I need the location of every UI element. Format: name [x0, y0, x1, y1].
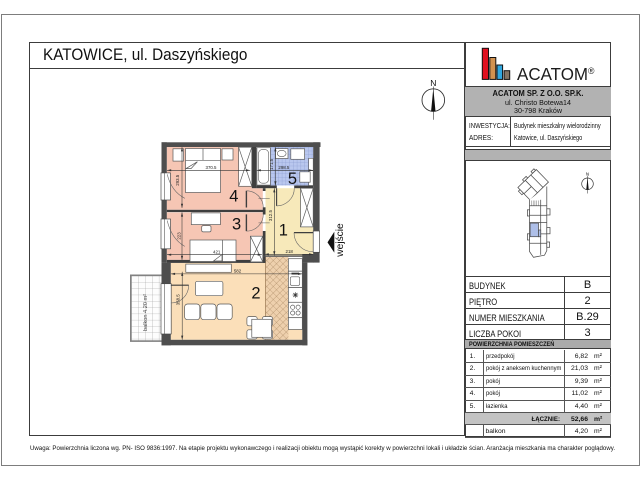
svg-text:5: 5	[288, 170, 297, 188]
svg-text:312.5: 312.5	[268, 210, 273, 222]
svg-text:171.5: 171.5	[269, 158, 274, 170]
svg-text:N: N	[430, 78, 436, 88]
svg-text:370.5: 370.5	[206, 165, 218, 170]
svg-text:223: 223	[176, 232, 181, 240]
svg-text:2: 2	[251, 284, 260, 302]
svg-text:wejście: wejście	[335, 223, 346, 258]
svg-text:358.5: 358.5	[176, 294, 181, 306]
svg-text:421: 421	[213, 250, 221, 255]
svg-text:582: 582	[234, 269, 242, 274]
svg-text:3: 3	[232, 215, 241, 233]
svg-text:N: N	[586, 172, 589, 177]
svg-text:298.5: 298.5	[278, 165, 290, 170]
svg-text:1: 1	[279, 221, 288, 239]
svg-text:218: 218	[286, 249, 294, 254]
svg-text:4: 4	[229, 187, 238, 205]
svg-text:293.5: 293.5	[175, 174, 180, 186]
svg-text:balkon 4.20 m²: balkon 4.20 m²	[143, 294, 149, 331]
